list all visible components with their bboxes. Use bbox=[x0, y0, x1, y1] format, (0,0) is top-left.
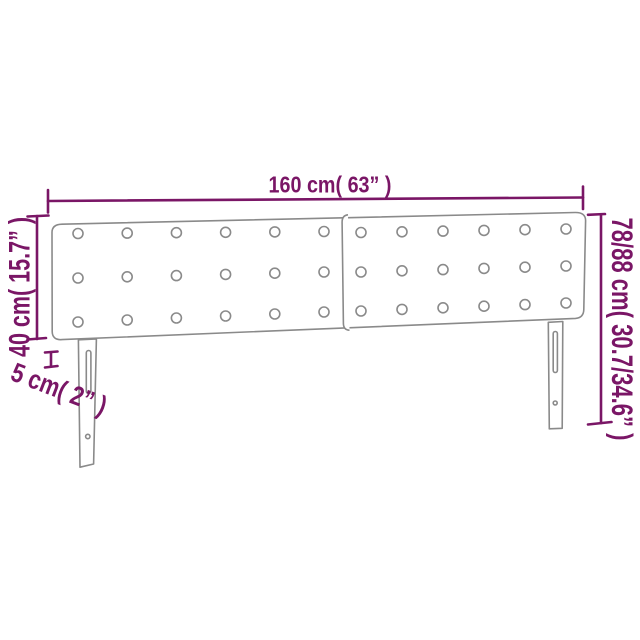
leg-left-screw-hole bbox=[86, 434, 90, 438]
tufting-button bbox=[122, 315, 132, 325]
tufting-button bbox=[221, 227, 231, 237]
tufting-button bbox=[479, 301, 489, 311]
panel-height-dimension: 40 cm( 15.7” ) bbox=[4, 216, 49, 358]
diagram-canvas: 160 cm( 63” ) 40 cm( 15.7” ) 5 cm( 2” ) bbox=[0, 0, 640, 640]
total-height-dimension-tick-top bbox=[588, 214, 605, 215]
tufting-button bbox=[520, 262, 530, 272]
tufting-button bbox=[319, 267, 329, 277]
tufting-button bbox=[438, 226, 448, 236]
tufting-button bbox=[221, 311, 231, 321]
tufting-button bbox=[397, 266, 407, 276]
tufting-button bbox=[171, 313, 181, 323]
tufting-button bbox=[520, 300, 530, 310]
tufting-button bbox=[319, 307, 329, 317]
panel-height-dimension-tick-top bbox=[28, 216, 49, 217]
tufting-button bbox=[73, 229, 83, 239]
tufting-button bbox=[270, 268, 280, 278]
leg-right-screw-hole bbox=[553, 401, 557, 405]
tufting-button bbox=[561, 224, 571, 234]
tufting-button bbox=[438, 265, 448, 275]
tufting-button bbox=[221, 269, 231, 279]
tufting-button bbox=[520, 225, 530, 235]
headboard bbox=[52, 212, 586, 467]
tufting-button bbox=[356, 306, 366, 316]
total-height-dimension-label: 78/88 cm( 30.7/34.6” ) bbox=[605, 218, 638, 441]
width-dimension-line bbox=[48, 198, 583, 202]
tufting-button bbox=[122, 228, 132, 238]
tufting-button bbox=[438, 303, 448, 313]
width-dimension: 160 cm( 63” ) bbox=[48, 172, 583, 213]
tufting-button bbox=[270, 227, 280, 237]
tufting-button bbox=[73, 273, 83, 283]
tufting-button bbox=[319, 227, 329, 237]
tufting-button bbox=[479, 263, 489, 273]
tufting-button bbox=[73, 317, 83, 327]
tufting-button bbox=[561, 298, 571, 308]
width-dimension-label: 160 cm( 63” ) bbox=[269, 172, 392, 198]
leg-right-keyhole-slot bbox=[553, 332, 557, 373]
tufting-button bbox=[171, 271, 181, 281]
tufting-button bbox=[397, 304, 407, 314]
tufting-button bbox=[356, 228, 366, 238]
headboard-leg-right bbox=[548, 322, 563, 429]
headboard-dimension-diagram: 160 cm( 63” ) 40 cm( 15.7” ) 5 cm( 2” ) bbox=[0, 0, 640, 640]
tufting-button bbox=[122, 272, 132, 282]
tufting-button bbox=[479, 225, 489, 235]
total-height-dimension: 78/88 cm( 30.7/34.6” ) bbox=[588, 214, 638, 441]
thickness-dimension-tick-top bbox=[45, 352, 58, 353]
tufting-button bbox=[397, 227, 407, 237]
tufting-button bbox=[356, 267, 366, 277]
tufting-button bbox=[270, 309, 280, 319]
panel-height-dimension-label: 40 cm( 15.7” ) bbox=[4, 217, 37, 357]
tufting-button bbox=[561, 261, 571, 271]
tufting-button bbox=[171, 228, 181, 238]
